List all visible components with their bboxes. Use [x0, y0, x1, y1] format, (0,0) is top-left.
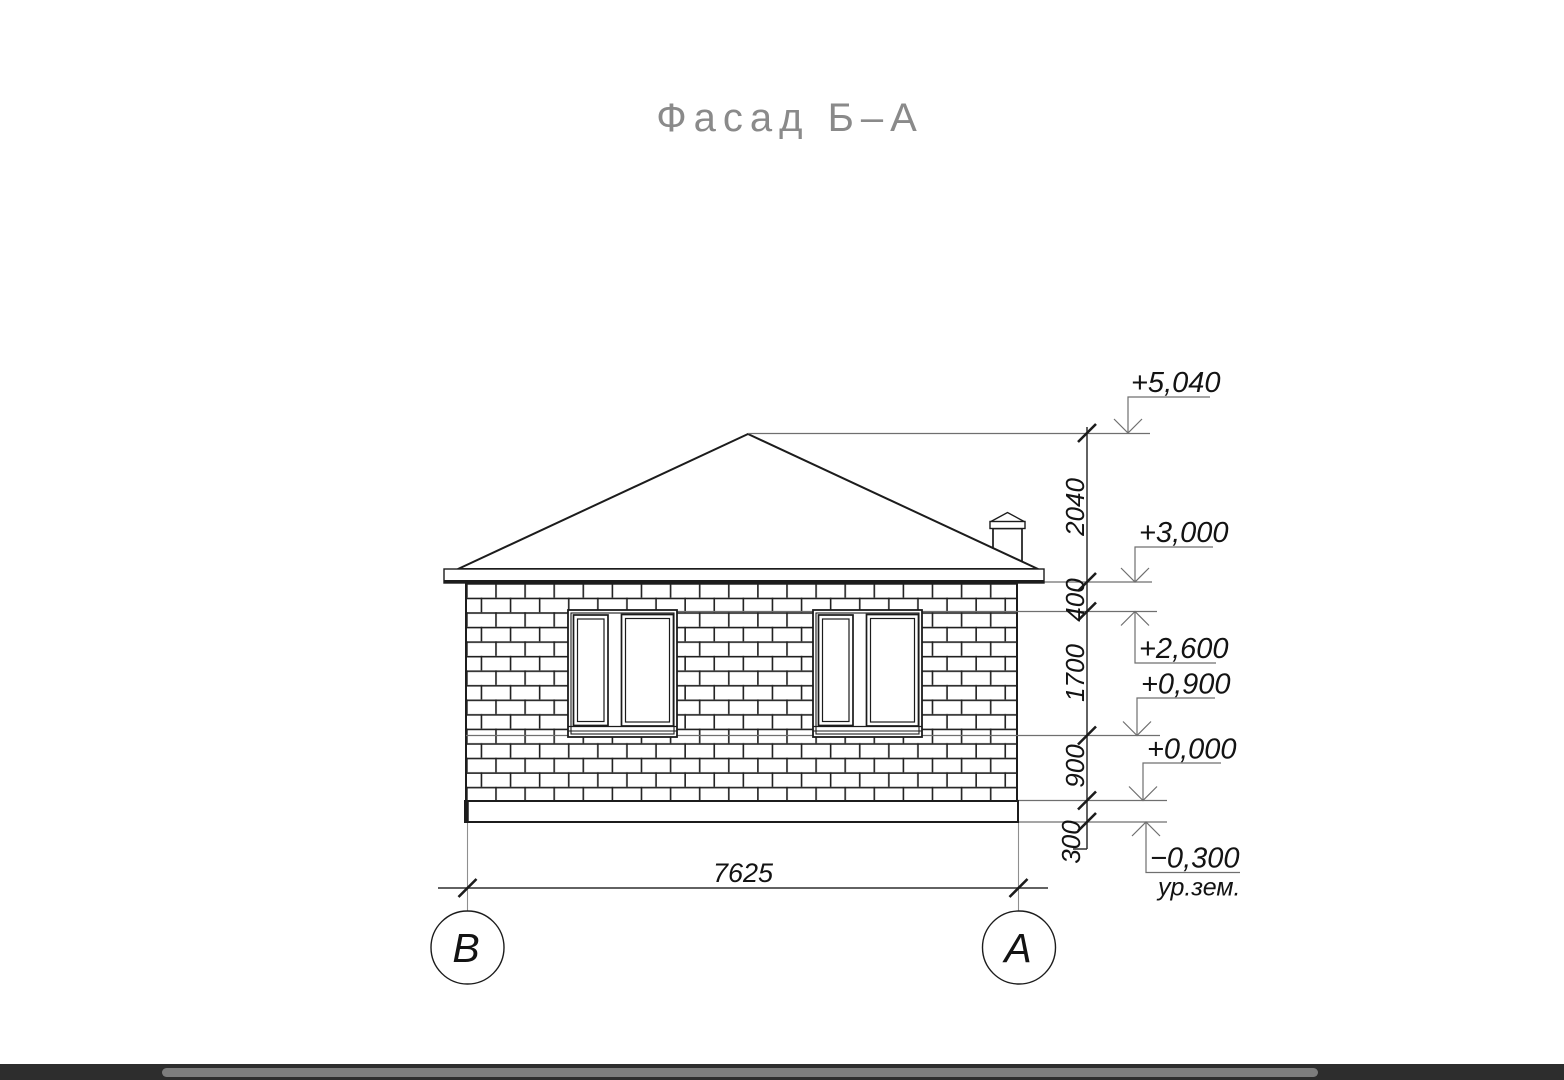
vertical-dimension-chain: 2040 400 1700 900 300 — [1056, 424, 1096, 864]
dim-width: 7625 — [713, 858, 774, 888]
level-mark-2600: +2,600 — [1121, 612, 1229, 666]
level-label-minus0300: −0,300 — [1150, 843, 1240, 875]
dim-2040: 2040 — [1060, 478, 1090, 537]
facade-drawing-canvas: Фасад Б–А — [0, 0, 1564, 1080]
level-mark-0900: +0,900 — [1123, 669, 1231, 736]
brick-wall — [466, 583, 1017, 801]
level-mark-5040: +5,040 — [1114, 367, 1221, 433]
level-label-3000: +3,000 — [1139, 517, 1229, 549]
axis-circle-right: А — [983, 911, 1056, 984]
horizontal-dimension: 7625 — [438, 823, 1048, 911]
level-mark-3000: +3,000 — [1121, 517, 1229, 582]
level-mark-0000: +0,000 — [1129, 734, 1237, 801]
axis-label-left: В — [452, 925, 479, 971]
level-label-0000: +0,000 — [1147, 734, 1237, 766]
level-label-0900: +0,900 — [1141, 669, 1231, 701]
level-mark-minus0300: −0,300 ур.зем. — [1132, 822, 1240, 902]
chimney-cap — [990, 522, 1025, 529]
dim-900: 900 — [1060, 744, 1090, 788]
level-label-2600: +2,600 — [1139, 633, 1229, 665]
axis-label-right: А — [1001, 925, 1031, 971]
dim-300: 300 — [1056, 820, 1086, 864]
eave-fascia — [444, 569, 1044, 583]
horizontal-scrollbar-thumb[interactable] — [162, 1068, 1318, 1077]
axis-circle-left: В — [431, 911, 504, 984]
level-label-5040: +5,040 — [1131, 367, 1221, 399]
roof — [458, 434, 1038, 569]
drawing-viewport: Фасад Б–А — [0, 0, 1564, 1080]
drawing-title: Фасад Б–А — [656, 96, 924, 140]
plinth — [465, 801, 1018, 822]
ground-level-label: ур.зем. — [1156, 874, 1240, 902]
dim-1700: 1700 — [1060, 644, 1090, 702]
dim-400: 400 — [1060, 578, 1090, 622]
window-right — [813, 610, 922, 737]
window-left — [568, 610, 677, 737]
chimney-cap-peak — [990, 513, 1025, 523]
